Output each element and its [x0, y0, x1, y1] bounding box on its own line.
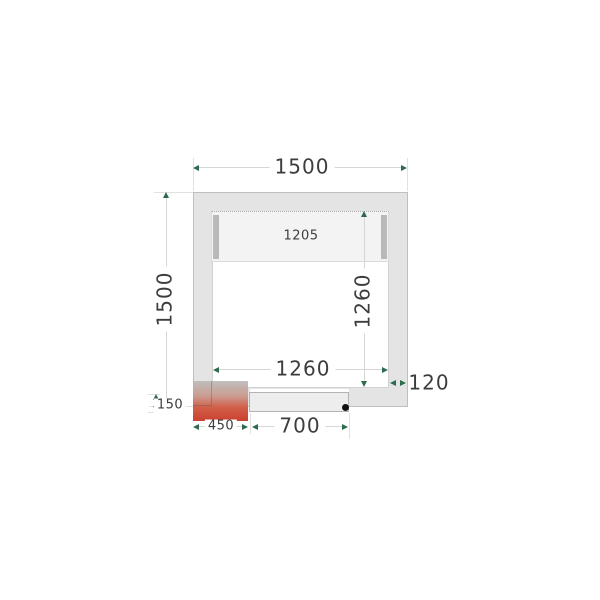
door-width-label: 700 [274, 415, 325, 438]
extension-line [407, 158, 408, 191]
arrow-right-icon [400, 380, 406, 386]
extension-line [154, 192, 193, 193]
outer-width-label: 1500 [270, 156, 335, 179]
extension-line [250, 413, 251, 434]
arrow-right-icon [342, 424, 348, 430]
wall-corner-line-horizontal [193, 405, 212, 406]
cooling-unit [193, 381, 248, 421]
arrow-down-icon [361, 381, 367, 387]
wall-thickness-label: 120 [408, 372, 449, 395]
cold-room-floor-plan: 1205 1500 1500 [0, 0, 600, 600]
arrow-left-icon [213, 367, 219, 373]
unit-width-label: 450 [205, 420, 237, 435]
arrow-left-icon [193, 424, 199, 430]
panel-end-cap-right [381, 215, 387, 259]
arrow-right-icon [242, 424, 248, 430]
extension-line [349, 413, 350, 439]
outer-depth-label: 1500 [154, 267, 177, 332]
unit-offset-label: 150 [154, 399, 186, 414]
inner-width-label: 1260 [271, 358, 336, 381]
extension-line [193, 158, 194, 191]
arrow-right-icon [401, 165, 407, 171]
arrow-left-icon [193, 165, 199, 171]
panel-width-label: 1205 [283, 230, 318, 245]
panel-end-cap-left [213, 215, 219, 259]
arrow-left-icon [252, 424, 258, 430]
wall-corner-line-vertical [211, 381, 212, 406]
arrow-right-icon [382, 367, 388, 373]
arrow-left-icon [390, 380, 396, 386]
door-leaf [249, 392, 349, 412]
arrow-up-icon [361, 211, 367, 217]
inner-depth-label: 1260 [352, 269, 375, 334]
arrow-up-icon [163, 192, 169, 198]
door-handle-dot [342, 404, 349, 411]
